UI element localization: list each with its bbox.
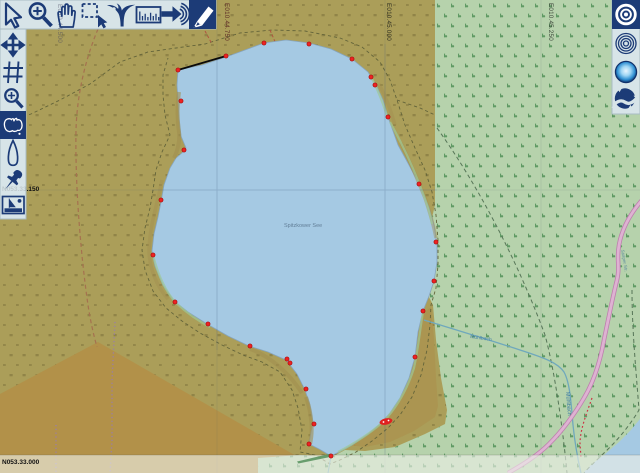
svg-text:Spitzkower See: Spitzkower See [284, 223, 322, 229]
svg-text:E010.45.250: E010.45.250 [547, 3, 554, 41]
svg-text:N053.33.000: N053.33.000 [2, 459, 40, 466]
svg-text:N053.33.: N053.33. [2, 186, 29, 193]
svg-text:E010.44.750: E010.44.750 [223, 3, 230, 41]
svg-text:E010.45.000: E010.45.000 [385, 3, 392, 41]
